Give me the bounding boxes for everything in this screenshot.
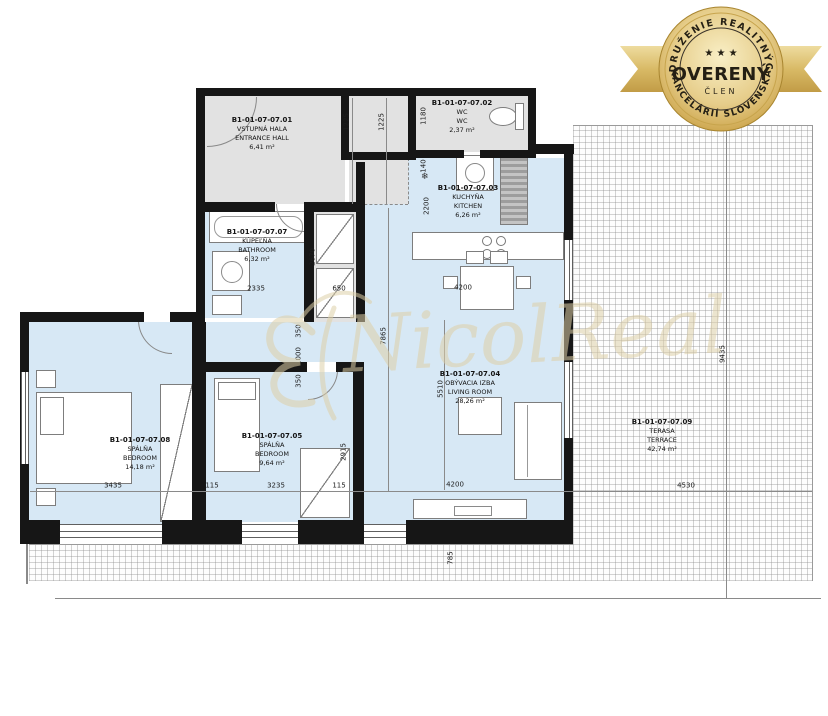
window bbox=[242, 524, 298, 538]
room-name-en: WC bbox=[410, 117, 514, 126]
wall-segment bbox=[298, 520, 364, 544]
dimension-line bbox=[55, 598, 821, 599]
room-name-sk: WC bbox=[410, 108, 514, 117]
wall-segment bbox=[408, 88, 536, 96]
room-name-en: BEDROOM bbox=[220, 450, 324, 459]
wall-segment bbox=[20, 312, 144, 322]
room-area: 9,64 m² bbox=[220, 459, 324, 468]
wall-segment bbox=[528, 92, 536, 152]
wall-segment bbox=[196, 88, 205, 318]
room-name-sk: KÚPEĽŇA bbox=[205, 237, 309, 246]
room-name-sk: KUCHYŇA bbox=[416, 193, 520, 202]
badge-stars: ★ ★ ★ bbox=[704, 48, 737, 59]
stove-burner bbox=[482, 236, 492, 246]
window bbox=[60, 524, 162, 538]
room-area: 14,18 m² bbox=[88, 463, 192, 472]
room-area: 6,26 m² bbox=[416, 211, 520, 220]
dimension-label: 115 bbox=[332, 483, 345, 490]
dimension-label: 3435 bbox=[104, 483, 122, 490]
room-name-en: KITCHEN bbox=[416, 202, 520, 211]
terrace-area-bottom bbox=[29, 544, 573, 581]
dimension-label: 140 bbox=[421, 159, 428, 172]
room-name-sk: VSTUPNÁ HALA bbox=[210, 125, 314, 134]
wall-segment bbox=[205, 202, 275, 212]
dimension-label: 3235 bbox=[267, 483, 285, 490]
dimension-line bbox=[352, 98, 353, 204]
wall-segment bbox=[564, 150, 573, 240]
room-name-sk: SPÁLŇA bbox=[220, 441, 324, 450]
toilet-tank bbox=[515, 103, 524, 130]
watermark-text: NicolReal bbox=[338, 281, 729, 391]
tv-bench bbox=[413, 499, 527, 519]
dimension-label: 4530 bbox=[677, 483, 695, 490]
wall-segment bbox=[170, 312, 205, 322]
dimension-label: 4200 bbox=[446, 482, 464, 489]
fridge-snowflake-icon: ❄ bbox=[421, 173, 429, 182]
dimension-label: 1225 bbox=[379, 113, 386, 131]
room-label-kitchen: B1-01-07-07.03 KUCHYŇA KITCHEN 6,26 m² bbox=[416, 184, 520, 220]
verified-badge: ZDRUŽENIE REALITNÝCH KANCELÁRIÍ SLOVENSK… bbox=[614, 0, 828, 142]
room-label-bedroom-right: B1-01-07-07.05 SPÁLŇA BEDROOM 9,64 m² bbox=[220, 432, 324, 468]
badge-title: OVERENÝ bbox=[672, 63, 771, 85]
room-label-wc: B1-01-07-07.02 WC WC 2,37 m² bbox=[410, 99, 514, 135]
wall-segment bbox=[406, 520, 573, 544]
bathroom-sink bbox=[212, 295, 242, 315]
dimension-label: 2915 bbox=[341, 443, 348, 461]
pillow bbox=[40, 397, 64, 435]
room-label-entrance-hall: B1-01-07-07.01 VSTUPNÁ HALA ENTRANCE HAL… bbox=[210, 116, 314, 152]
room-name-en: TERRACE bbox=[610, 436, 714, 445]
wall-segment bbox=[564, 438, 573, 526]
terrace-edge-line bbox=[26, 544, 28, 584]
wall-segment bbox=[414, 150, 464, 158]
dimension-label: 115 bbox=[205, 483, 218, 490]
wall-segment bbox=[162, 520, 242, 544]
wall-segment bbox=[196, 88, 416, 96]
badge-subtitle: ČLEN bbox=[704, 85, 737, 96]
watermark: NicolReal bbox=[240, 250, 780, 430]
wall-segment bbox=[480, 150, 536, 158]
nightstand bbox=[36, 370, 56, 388]
room-area: 6,41 m² bbox=[210, 143, 314, 152]
dashed-boundary bbox=[408, 158, 409, 204]
room-label-bedroom-left: B1-01-07-07.08 SPÁLŇA BEDROOM 14,18 m² bbox=[88, 436, 192, 472]
dimension-line bbox=[30, 491, 812, 492]
room-area: 42,74 m² bbox=[610, 445, 714, 454]
window bbox=[21, 372, 29, 464]
stove-burner bbox=[496, 236, 506, 246]
window bbox=[364, 524, 406, 538]
floor-plan-page: ❄ bbox=[0, 0, 828, 716]
room-name-en: ENTRANCE HALL bbox=[210, 134, 314, 143]
room-code: B1-01-07-07.02 bbox=[410, 99, 514, 108]
room-area: 2,37 m² bbox=[410, 126, 514, 135]
dimension-label: 785 bbox=[448, 551, 455, 564]
room-name-en: BEDROOM bbox=[88, 454, 192, 463]
room-name-sk: SPÁLŇA bbox=[88, 445, 192, 454]
dimension-label: 1225 bbox=[344, 113, 351, 131]
wall-segment bbox=[20, 520, 60, 544]
dimension-line bbox=[386, 98, 387, 204]
